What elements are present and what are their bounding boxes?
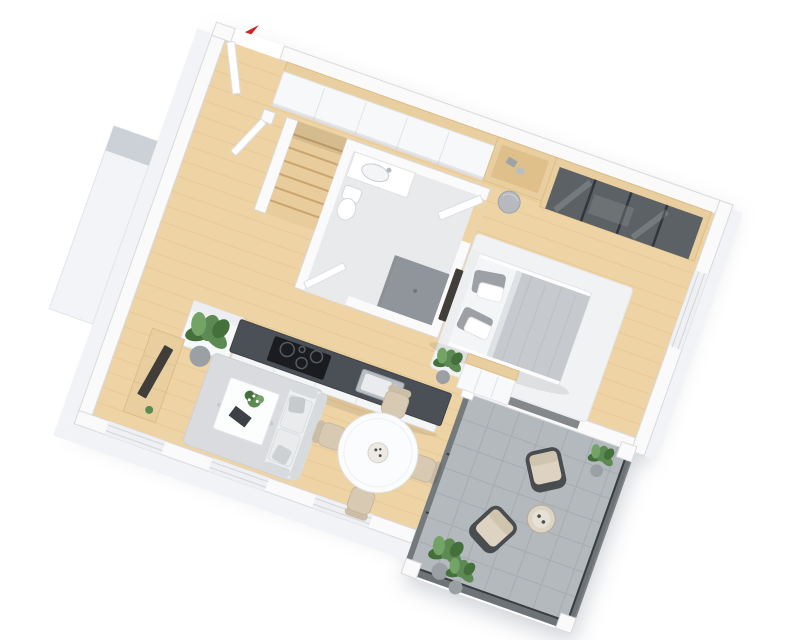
floor-plan-canvas bbox=[0, 0, 800, 640]
floor-plan-svg bbox=[0, 0, 800, 640]
throw-pillow-1 bbox=[288, 396, 306, 414]
apartment-plan bbox=[4, 1, 744, 640]
